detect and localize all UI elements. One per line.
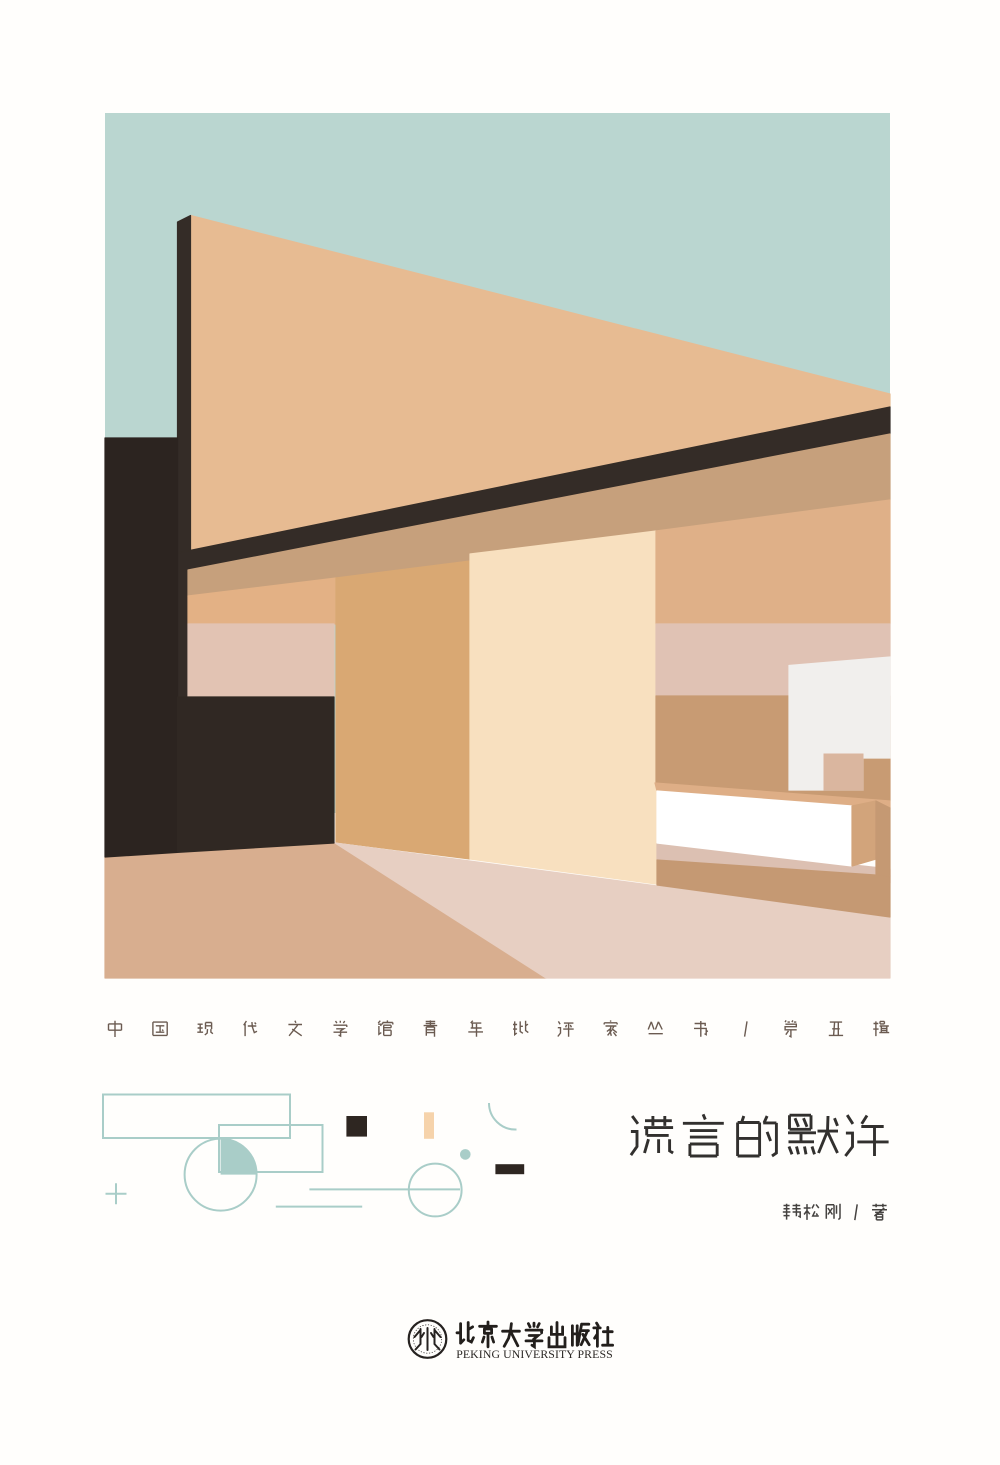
svg-text:PEKING UNIVERSITY PRESS: PEKING UNIVERSITY PRESS [456,1347,613,1361]
